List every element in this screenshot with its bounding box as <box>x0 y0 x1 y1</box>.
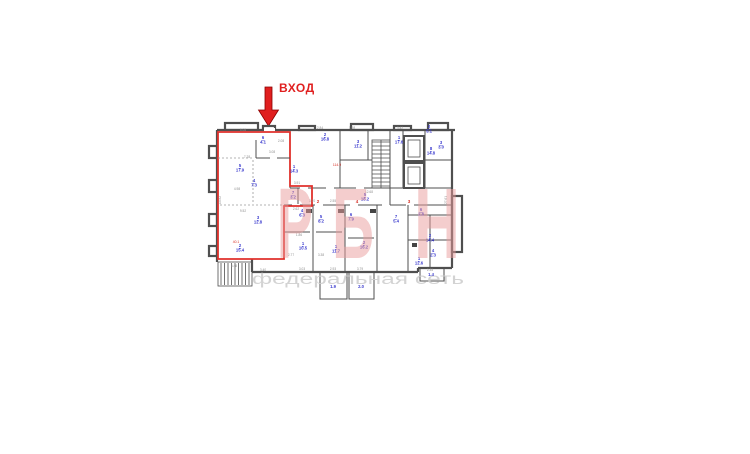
room-label: 814.8 <box>427 146 436 156</box>
dimension-text: 3.08 <box>269 150 275 154</box>
watermark-subtext: федеральная сеть <box>252 271 464 288</box>
room-label: 215.4 <box>236 243 245 253</box>
room-label: 517.9 <box>236 163 245 173</box>
apartment-number: 3 <box>408 199 411 204</box>
room-label: 25.1 <box>426 124 432 134</box>
floor-plan: 64.1517.947.373.2312.8215.4216.8114.3311… <box>0 0 750 454</box>
dimension-text: 5.08 <box>240 128 246 132</box>
room-label: 216.8 <box>321 132 330 142</box>
red-note: 114.9 <box>333 163 341 167</box>
screenshot-canvas: ВХОД <box>0 0 750 454</box>
dimension-text: 4.98 <box>234 187 240 191</box>
red-note: 40.1 <box>233 240 240 244</box>
dimension-text: 9.52 <box>240 209 246 213</box>
room-label: 75.4 <box>393 214 399 224</box>
room-label: 47.3 <box>251 178 257 188</box>
watermark-letter: Р <box>277 168 313 280</box>
dimension-text: 3.42 <box>397 126 403 130</box>
dimension-text: 3.38 <box>318 253 324 257</box>
watermark-letter: Н <box>414 168 460 280</box>
room-label: 312.8 <box>254 215 263 225</box>
stairs <box>372 140 390 188</box>
dimension-text: 1.98 <box>349 126 355 130</box>
dimension-text: 13.92 <box>218 196 222 204</box>
watermark-text: РБНфедеральная сеть <box>252 168 464 288</box>
red-unit-zone-dividers <box>218 158 282 205</box>
dimension-text: 7.28 <box>244 155 250 159</box>
room-label: 311.2 <box>354 139 363 149</box>
entrance-arrow-icon <box>259 87 279 126</box>
room-label: 117.6 <box>395 135 404 145</box>
room-label: 64.1 <box>260 135 266 145</box>
watermark-letter: Б <box>332 168 374 280</box>
apartment-number: 2 <box>317 199 320 204</box>
dimension-text: 2.84 <box>317 126 323 130</box>
dimension-text: 2.08 <box>278 139 284 143</box>
room-label: 58.2 <box>318 214 324 224</box>
dimension-text: 5.48 <box>231 264 237 268</box>
room-label: 33.0 <box>438 140 444 150</box>
